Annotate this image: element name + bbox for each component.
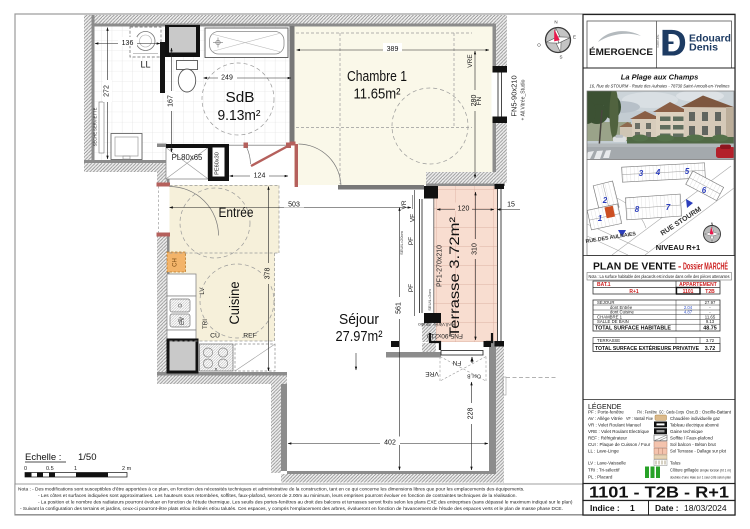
svg-text:Entrée: Entrée	[219, 205, 254, 220]
svg-text:VRE: VRE	[467, 54, 474, 68]
svg-text:0: 0	[24, 466, 27, 472]
svg-text:Denis: Denis	[689, 42, 718, 54]
svg-text:REF : Réfrigérateur: REF : Réfrigérateur	[588, 436, 628, 441]
svg-text:PF: PF	[408, 284, 415, 292]
svg-text:48.75: 48.75	[703, 326, 717, 332]
svg-text:503: 503	[288, 202, 300, 209]
svg-text:Dossier MARCHÉ: Dossier MARCHÉ	[683, 260, 728, 273]
svg-text:EV: EV	[180, 317, 186, 325]
svg-text:Sol balcon - Béton brut: Sol balcon - Béton brut	[670, 442, 717, 447]
svg-text:CU: CU	[210, 333, 220, 340]
svg-text:FN: FN	[452, 359, 461, 366]
svg-text:LV : Lave-Vaisselle: LV : Lave-Vaisselle	[588, 461, 626, 466]
svg-text:Soffite / Faux-plafond: Soffite / Faux-plafond	[670, 436, 713, 441]
svg-text:VRE : Volet Roulant Electrique: VRE : Volet Roulant Electrique	[588, 429, 650, 434]
svg-text:SÈCHE SERVIETTE: SÈCHE SERVIETTE	[93, 107, 98, 146]
svg-text:124: 124	[254, 173, 266, 180]
svg-text:Chaudière individuelle gaz: Chaudière individuelle gaz	[670, 416, 721, 421]
svg-text:310: 310	[472, 243, 479, 255]
svg-text:FN5-90x210: FN5-90x210	[510, 75, 519, 116]
svg-text:228: 228	[468, 408, 475, 420]
svg-text:doublée d'une Haie sur 1 seul: doublée d'une Haie sur 1 seul côté selon…	[670, 476, 731, 480]
svg-text:Séjour: Séjour	[339, 311, 379, 328]
svg-text:LL : Lave-Linge: LL : Lave-Linge	[588, 449, 619, 454]
svg-text:378: 378	[265, 268, 272, 280]
svg-text:249: 249	[221, 75, 233, 82]
svg-text:NIVEAU R+1: NIVEAU R+1	[656, 243, 700, 252]
svg-text:PF : Porte-fenêtre: PF : Porte-fenêtre	[588, 410, 624, 415]
svg-text:Nota : La surface habitable d: Nota : La surface habitable des placards…	[589, 274, 731, 279]
svg-text:0.5: 0.5	[46, 466, 54, 472]
svg-text:R+1: R+1	[629, 289, 639, 295]
svg-text:3: 3	[639, 169, 644, 178]
svg-text:1101 - T2B - R+1: 1101 - T2B - R+1	[589, 485, 729, 502]
svg-text:PE60x30: PE60x30	[215, 152, 221, 175]
svg-text:Echelle :: Echelle :	[25, 452, 61, 463]
svg-text:SEUIL=2cm: SEUIL=2cm	[427, 289, 432, 311]
svg-text:- La position et le nombre des: - La position et le nombre des radiateur…	[38, 500, 573, 506]
svg-text:1: 1	[630, 503, 635, 513]
svg-text:9.13: 9.13	[706, 319, 715, 324]
svg-text:T2B: T2B	[705, 289, 715, 295]
svg-text:S: S	[559, 55, 562, 60]
svg-text:Sol Terrasse - Dallage sur plo: Sol Terrasse - Dallage sur plot	[670, 449, 727, 454]
svg-text:SdB: SdB	[226, 90, 255, 106]
svg-text:5: 5	[685, 167, 690, 176]
svg-text:O: O	[537, 43, 541, 48]
svg-text:16, Rue de STOURM - Route des: 16, Rue de STOURM - Route des Aulnaies -…	[590, 84, 731, 90]
svg-text:CUI : Plaque de Cuisson / Four: CUI : Plaque de Cuisson / Four	[588, 442, 651, 447]
svg-text:2 m: 2 m	[122, 466, 132, 472]
svg-text:PLAN DE VENTE: PLAN DE VENTE	[593, 262, 676, 273]
svg-text:4: 4	[655, 168, 661, 177]
svg-text:TOTAL SURFACE EXTÉRIEURE PRIVA: TOTAL SURFACE EXTÉRIEURE PRIVATIVE	[595, 344, 699, 352]
svg-text:TERRASSE: TERRASSE	[597, 338, 620, 343]
svg-text:-: -	[678, 262, 681, 273]
svg-text:4.87: 4.87	[684, 310, 693, 315]
svg-text:SEUIL=20cm: SEUIL=20cm	[399, 230, 404, 254]
svg-text:TOTAL SURFACE HABITABLE: TOTAL SURFACE HABITABLE	[595, 326, 671, 332]
svg-text:Cuisine: Cuisine	[226, 281, 242, 324]
svg-text:PL80x65: PL80x65	[172, 153, 203, 162]
svg-text:AV : Allège Vitrée: AV : Allège Vitrée	[588, 416, 623, 421]
svg-text:Date :: Date :	[655, 503, 679, 513]
svg-text:389: 389	[387, 46, 399, 53]
svg-text:Terrasse 3.72m²: Terrasse 3.72m²	[446, 217, 462, 337]
svg-text:1/50: 1/50	[78, 452, 97, 463]
svg-text:Gaine technique: Gaine technique	[670, 429, 703, 434]
svg-text:+ All.Vitrée_Studio: + All.Vitrée_Studio	[418, 322, 455, 327]
svg-text:FN : Fenêtre: FN : Fenêtre	[637, 410, 657, 415]
svg-text:PL : Placard: PL : Placard	[588, 475, 613, 480]
svg-text:+ All.Vitrée_Studio: + All.Vitrée_Studio	[521, 79, 527, 120]
svg-text:FN: FN	[476, 96, 483, 105]
svg-text:VF : Vantail Fixe: VF : Vantail Fixe	[626, 416, 653, 421]
svg-text:6: 6	[702, 186, 707, 195]
svg-text:9.13m²: 9.13m²	[218, 108, 261, 124]
svg-text:120: 120	[458, 206, 470, 213]
svg-text:La Plage aux Champs: La Plage aux Champs	[621, 73, 699, 82]
svg-text:136: 136	[122, 40, 134, 47]
svg-text:2: 2	[602, 196, 608, 205]
svg-text:BAT.1: BAT.1	[597, 282, 611, 288]
svg-text:27.97m²: 27.97m²	[336, 328, 383, 345]
svg-text:N: N	[554, 20, 557, 25]
svg-text:11.65m²: 11.65m²	[354, 86, 401, 103]
svg-text:18/03/2024: 18/03/2024	[684, 503, 727, 513]
svg-text:15: 15	[507, 202, 515, 209]
svg-text:VF: VF	[410, 214, 417, 222]
svg-text:Indice :: Indice :	[590, 503, 620, 513]
svg-text:TRI : Tri-sélectif: TRI : Tri-sélectif	[588, 468, 620, 473]
svg-text:FN5-90x210: FN5-90x210	[427, 332, 463, 339]
svg-text:8: 8	[635, 205, 640, 214]
svg-text:GC : Garde-Corps: GC : Garde-Corps	[659, 410, 685, 415]
svg-text:7: 7	[666, 203, 671, 212]
svg-text:402: 402	[384, 440, 396, 447]
svg-text:Talus: Talus	[670, 461, 681, 466]
svg-text:VR : Volet Roulant Manuel: VR : Volet Roulant Manuel	[588, 423, 641, 428]
svg-text:LL: LL	[140, 60, 150, 70]
svg-text:PF1-270x210: PF1-270x210	[437, 245, 444, 287]
svg-text:1: 1	[598, 214, 603, 223]
svg-text:Nota : - Des modifications s: Nota : - Des modifications sont suscepti…	[18, 487, 524, 493]
svg-text:561: 561	[396, 302, 403, 314]
svg-text:VR: VR	[401, 200, 408, 209]
svg-text:CH: CH	[173, 258, 179, 267]
svg-text:Tableau électrique abonné: Tableau électrique abonné	[670, 423, 719, 428]
svg-text:PF: PF	[408, 237, 415, 245]
svg-text:- Les côtes et surfaces indiqu: - Les côtes et surfaces indiquées sont a…	[38, 493, 517, 499]
svg-text:Osc.B: Osc.B	[467, 373, 481, 379]
svg-text:ÉMERGENCE: ÉMERGENCE	[589, 47, 653, 58]
svg-text:3.72: 3.72	[705, 346, 716, 352]
svg-text:SALLE DE BAIN: SALLE DE BAIN	[597, 319, 629, 324]
svg-text:1: 1	[74, 466, 77, 472]
svg-text:3.72: 3.72	[706, 338, 715, 343]
svg-text:Chambre 1: Chambre 1	[347, 68, 407, 85]
svg-text:272: 272	[104, 85, 111, 97]
svg-text:Osc.B : Oscillo-Battant: Osc.B : Oscillo-Battant	[686, 410, 732, 415]
svg-text:167: 167	[168, 95, 175, 107]
svg-text:VRE: VRE	[425, 370, 439, 377]
svg-text:E: E	[573, 35, 576, 40]
svg-text:Clôture grillagée simple torsi: Clôture grillagée simple torsion (ht 1 m…	[670, 468, 731, 473]
svg-text:- Suivant la configuration des: - Suivant la configuration des terrains …	[20, 506, 563, 512]
